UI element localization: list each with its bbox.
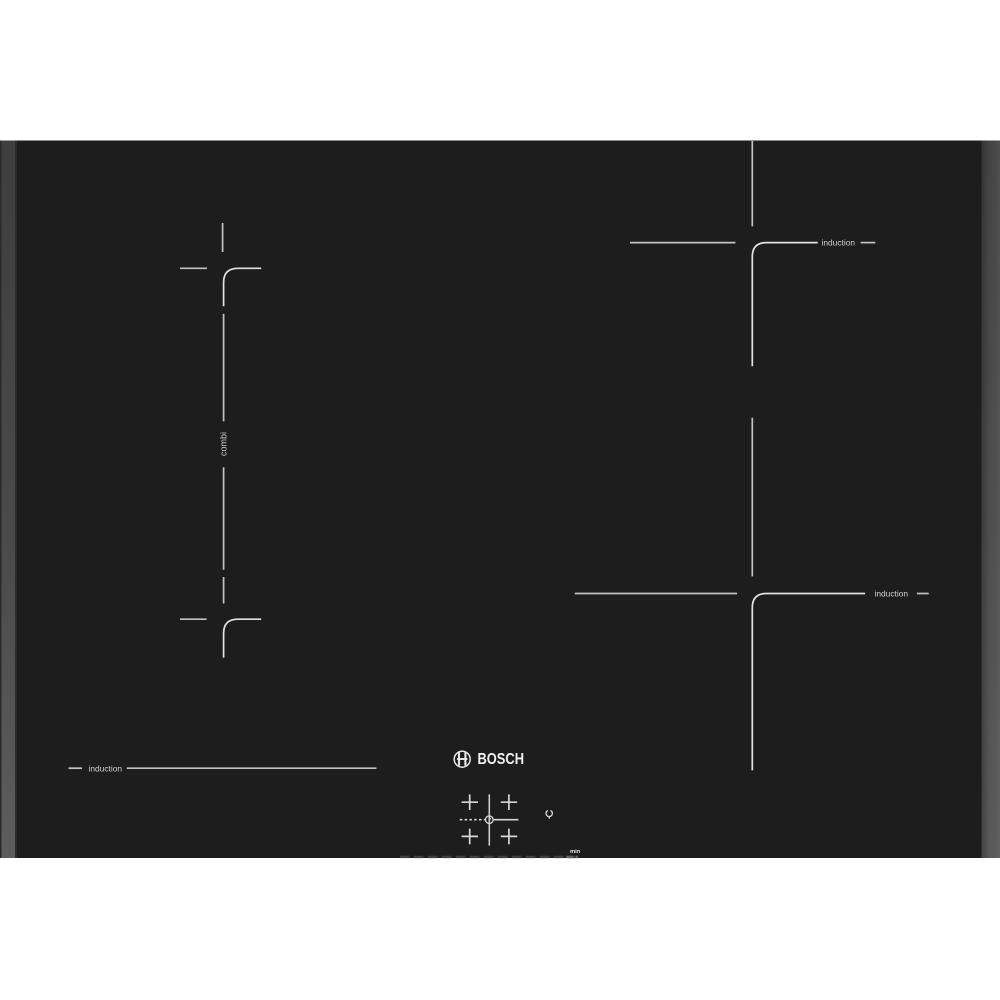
- svg-text:induction: induction: [822, 238, 856, 248]
- svg-text:combi: combi: [218, 432, 228, 456]
- svg-text:induction: induction: [875, 589, 909, 599]
- svg-text:BOSCH: BOSCH: [478, 751, 525, 768]
- svg-text:induction: induction: [89, 763, 123, 773]
- svg-text:min: min: [570, 849, 581, 855]
